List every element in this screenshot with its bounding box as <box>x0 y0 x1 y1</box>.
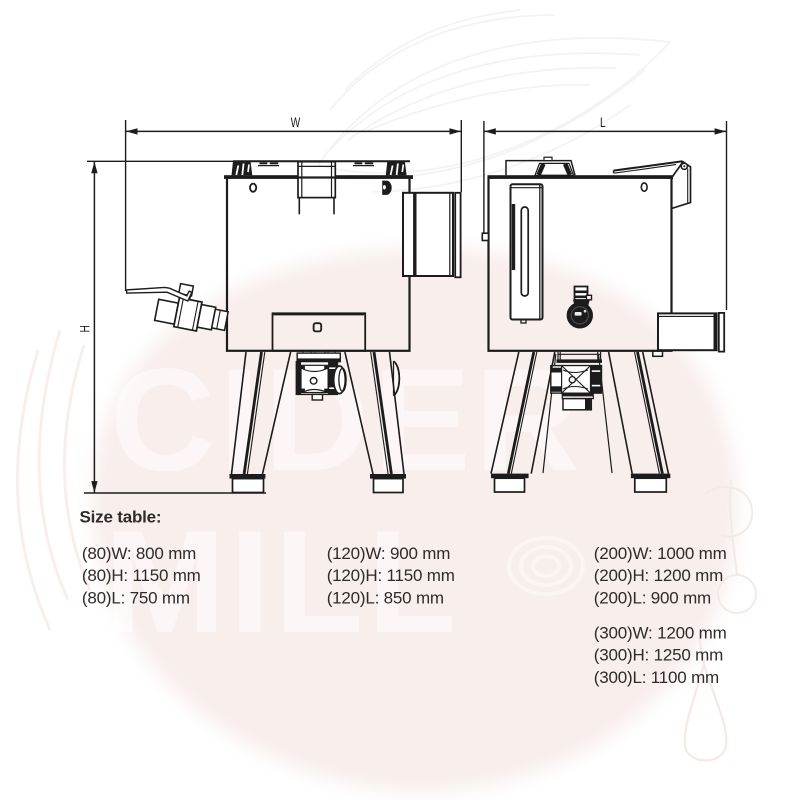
svg-text:(80)L: 750 mm: (80)L: 750 mm <box>82 589 190 608</box>
svg-text:(200)W: 1000 mm: (200)W: 1000 mm <box>594 544 727 563</box>
svg-text:(120)L: 850 mm: (120)L: 850 mm <box>327 589 444 608</box>
svg-text:W: W <box>291 114 301 130</box>
svg-text:(300)W: 1200 mm: (300)W: 1200 mm <box>594 623 727 642</box>
svg-text:(120)W: 900 mm: (120)W: 900 mm <box>327 544 451 563</box>
svg-text:(300)L: 1100 mm: (300)L: 1100 mm <box>594 668 719 687</box>
svg-text:(80)H: 1150 mm: (80)H: 1150 mm <box>82 566 201 585</box>
svg-text:(300)H: 1250 mm: (300)H: 1250 mm <box>594 646 723 665</box>
svg-text:L: L <box>600 115 606 131</box>
svg-text:(120)H: 1150 mm: (120)H: 1150 mm <box>327 566 455 585</box>
svg-text:H: H <box>77 325 93 332</box>
svg-text:(200)H: 1200 mm: (200)H: 1200 mm <box>594 566 723 585</box>
svg-text:(80)W: 800 mm: (80)W: 800 mm <box>82 544 196 563</box>
svg-text:(200)L: 900 mm: (200)L: 900 mm <box>594 589 711 608</box>
svg-text:Size table:: Size table: <box>80 508 162 527</box>
